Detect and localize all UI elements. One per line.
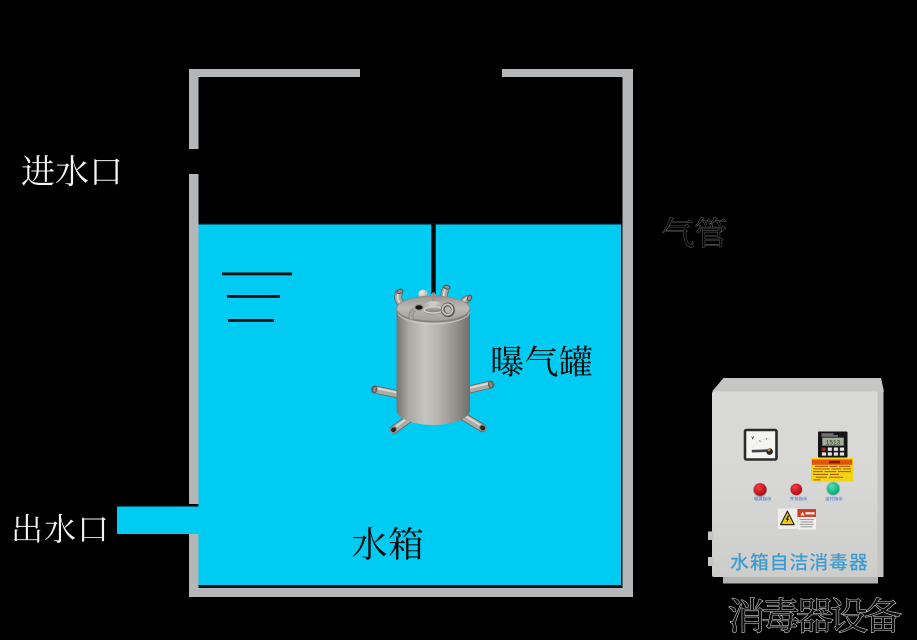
svg-text:1513: 1513 (826, 439, 841, 446)
